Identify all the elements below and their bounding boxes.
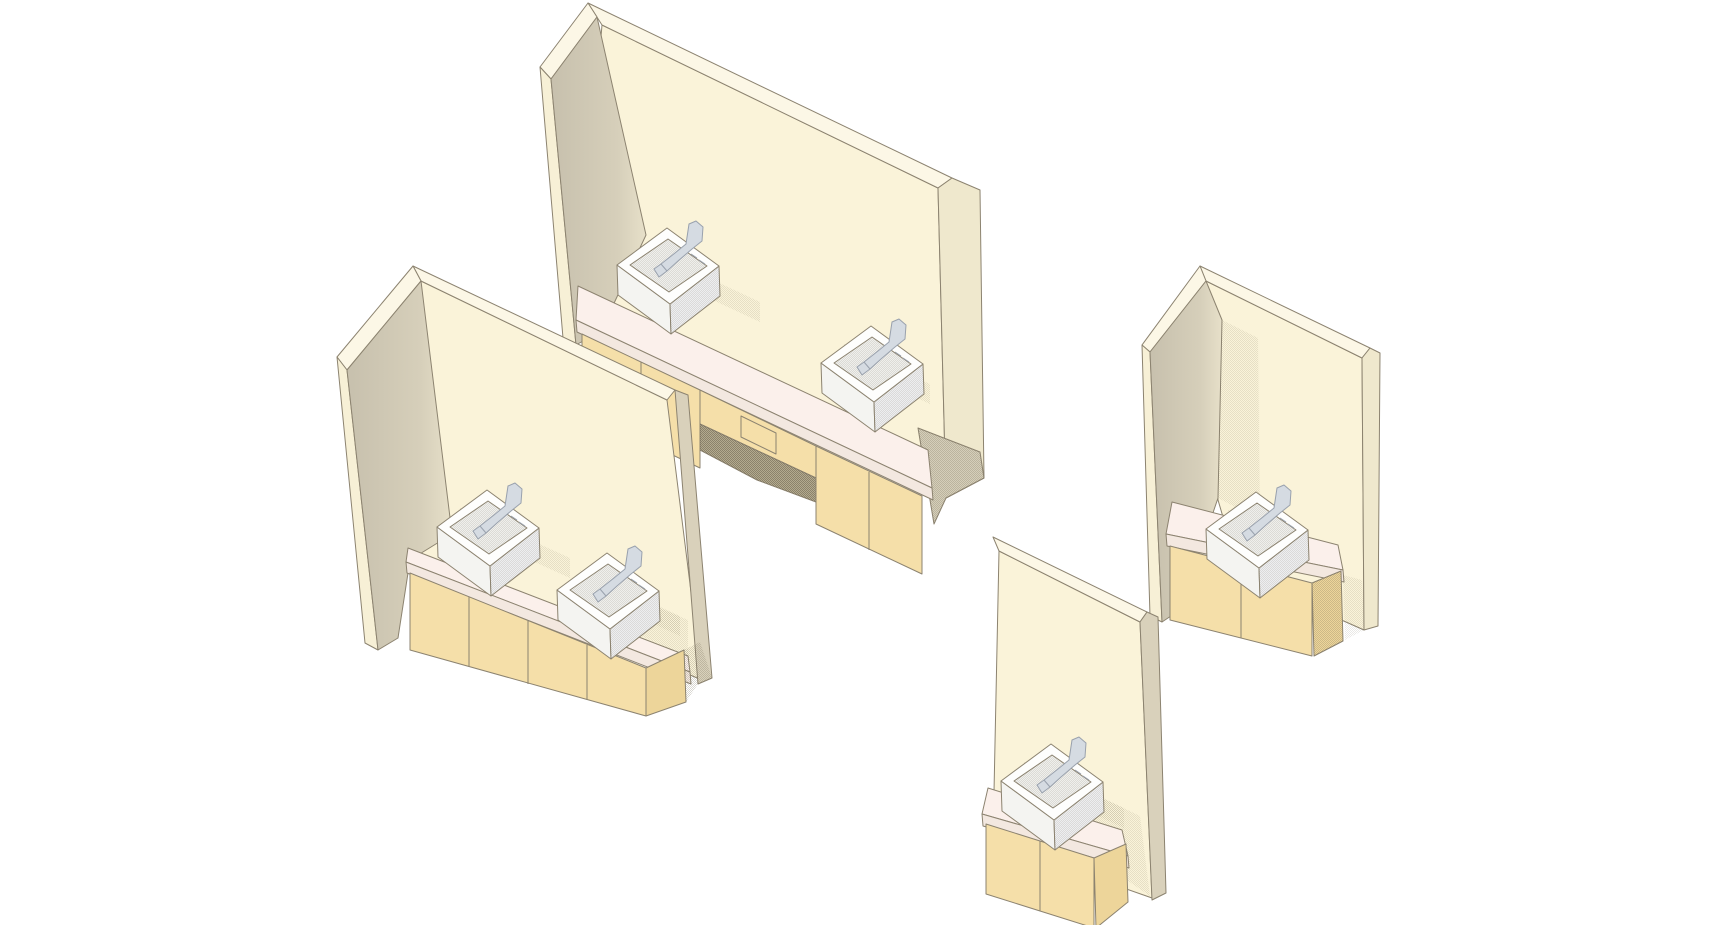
cabinet-end-shadow	[1312, 571, 1343, 656]
wall-base-shadow	[1343, 575, 1364, 640]
wall-shadow	[1218, 320, 1260, 520]
isometric-scene	[0, 0, 1710, 925]
wall-end-face	[1362, 348, 1380, 630]
